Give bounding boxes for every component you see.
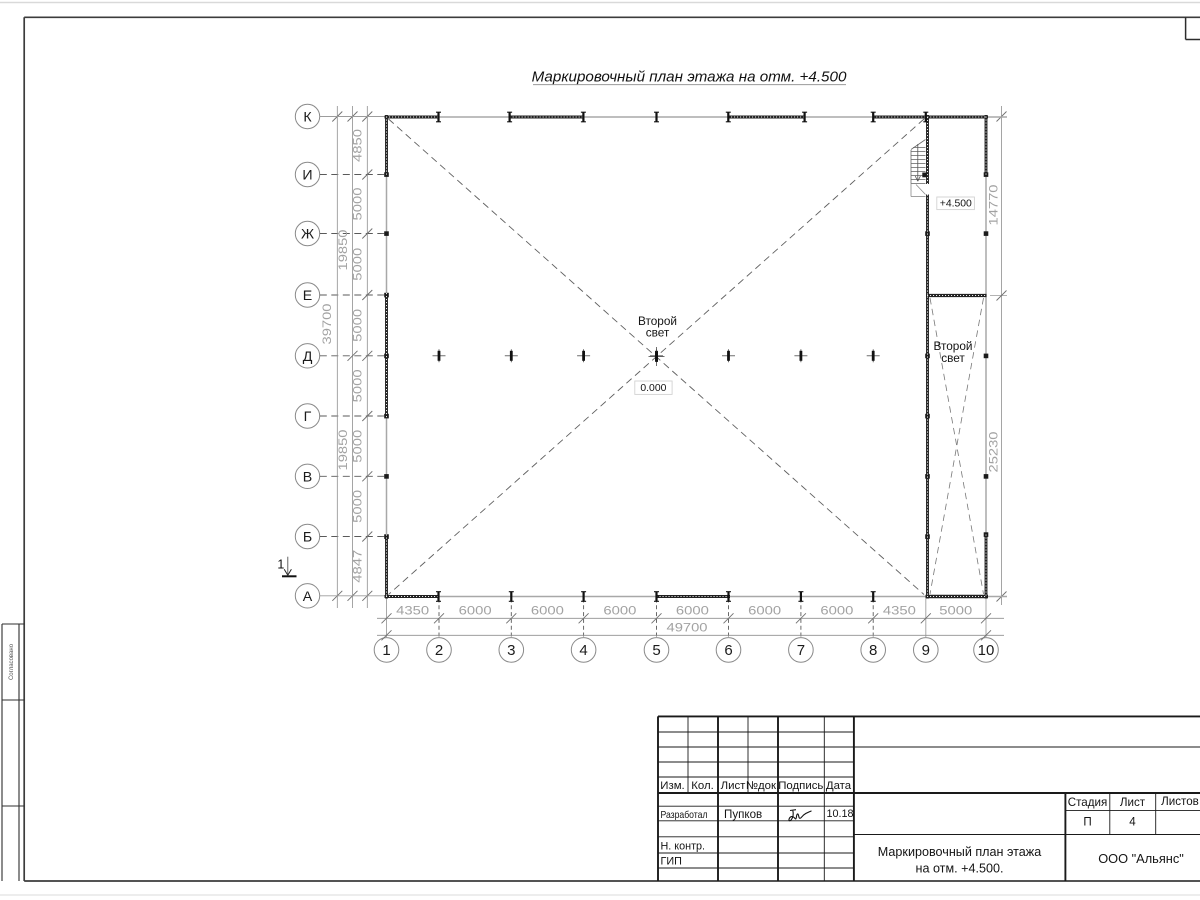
svg-text:Б: Б <box>303 530 312 546</box>
svg-text:6000: 6000 <box>820 606 853 618</box>
svg-text:4350: 4350 <box>883 606 916 618</box>
svg-text:Кол.: Кол. <box>691 780 714 792</box>
svg-text:Д: Д <box>303 349 313 365</box>
svg-text:свет: свет <box>646 326 670 340</box>
svg-text:4850: 4850 <box>353 129 365 162</box>
svg-text:свет: свет <box>941 351 965 365</box>
svg-text:4350: 4350 <box>396 606 429 618</box>
svg-text:5000: 5000 <box>353 248 365 281</box>
svg-text:14770: 14770 <box>989 185 1001 226</box>
svg-text:6000: 6000 <box>603 606 636 618</box>
svg-text:6000: 6000 <box>748 606 781 618</box>
svg-text:25230: 25230 <box>989 432 1001 473</box>
svg-text:7: 7 <box>797 642 805 659</box>
svg-text:Разработал: Разработал <box>661 809 708 821</box>
svg-text:9: 9 <box>922 642 930 659</box>
svg-text:4: 4 <box>579 642 587 659</box>
svg-text:5000: 5000 <box>939 606 972 618</box>
svg-text:Г: Г <box>304 409 312 425</box>
svg-text:6000: 6000 <box>459 606 492 618</box>
svg-text:+4.500: +4.500 <box>940 199 972 210</box>
svg-text:К: К <box>303 110 312 126</box>
svg-text:4: 4 <box>1129 816 1136 829</box>
svg-text:ООО "Альянс": ООО "Альянс" <box>1098 851 1184 866</box>
svg-text:5000: 5000 <box>353 430 365 463</box>
svg-text:Лист: Лист <box>721 780 747 792</box>
svg-text:0.000: 0.000 <box>640 383 666 394</box>
svg-text:5000: 5000 <box>353 309 365 342</box>
svg-text:В: В <box>303 469 312 485</box>
svg-text:П: П <box>1083 816 1091 829</box>
svg-text:4847: 4847 <box>353 550 365 583</box>
svg-text:И: И <box>302 168 312 184</box>
svg-text:19850: 19850 <box>338 230 350 271</box>
svg-text:Н. контр.: Н. контр. <box>661 841 706 853</box>
svg-text:Согласовано: Согласовано <box>9 643 15 680</box>
svg-text:5000: 5000 <box>353 369 365 402</box>
svg-text:5: 5 <box>652 642 660 659</box>
svg-text:на отм. +4.500.: на отм. +4.500. <box>916 862 1004 876</box>
svg-text:6000: 6000 <box>531 606 564 618</box>
svg-text:Лист: Лист <box>1120 796 1146 809</box>
svg-text:1: 1 <box>382 642 390 659</box>
svg-text:2: 2 <box>435 642 443 659</box>
svg-text:Маркировочный план этажа: Маркировочный план этажа <box>878 845 1041 859</box>
svg-text:Изм.: Изм. <box>660 780 684 792</box>
svg-text:6000: 6000 <box>676 606 709 618</box>
svg-text:Маркировочный план этажа на от: Маркировочный план этажа на отм. +4.500 <box>532 69 847 86</box>
svg-text:39700: 39700 <box>322 304 334 345</box>
svg-text:8: 8 <box>869 642 877 659</box>
svg-text:10: 10 <box>978 642 995 659</box>
svg-text:49700: 49700 <box>667 623 708 635</box>
svg-text:5000: 5000 <box>353 188 365 221</box>
svg-text:Стадия: Стадия <box>1068 796 1108 809</box>
svg-text:Листов: Листов <box>1161 795 1199 808</box>
svg-text:№док.: №док. <box>746 780 779 792</box>
svg-text:6: 6 <box>724 642 732 659</box>
svg-text:Ж: Ж <box>301 227 314 243</box>
svg-text:10.18: 10.18 <box>827 808 854 820</box>
svg-text:Е: Е <box>303 288 312 304</box>
svg-text:1: 1 <box>277 558 284 572</box>
svg-text:Подпись: Подпись <box>778 780 823 792</box>
svg-text:ГИП: ГИП <box>661 856 682 868</box>
svg-text:Дата: Дата <box>826 780 852 792</box>
svg-text:3: 3 <box>507 642 515 659</box>
svg-text:5000: 5000 <box>353 490 365 523</box>
svg-text:19850: 19850 <box>338 430 350 471</box>
svg-text:Пупков: Пупков <box>724 808 762 821</box>
svg-text:А: А <box>303 589 313 605</box>
